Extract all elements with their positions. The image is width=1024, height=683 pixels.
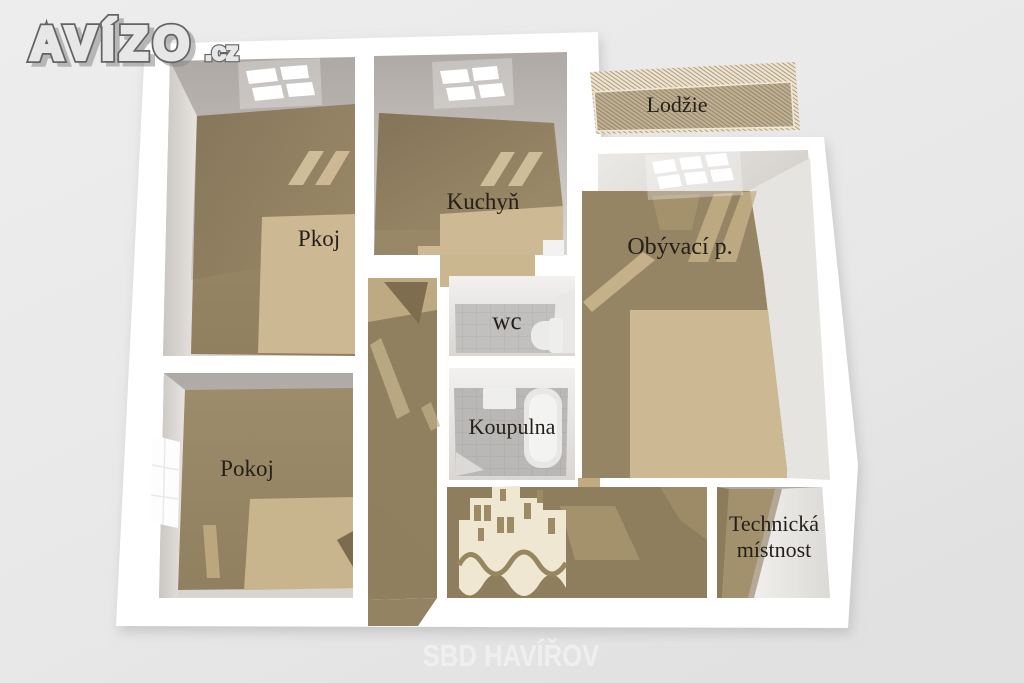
svg-text:Technická: Technická — [729, 511, 819, 536]
svg-text:.cz: .cz — [205, 38, 238, 66]
svg-text:Koupulna: Koupulna — [469, 414, 556, 439]
svg-text:Pkoj: Pkoj — [298, 226, 340, 251]
svg-text:Obývací p.: Obývací p. — [627, 234, 732, 260]
svg-text:AVÍZO: AVÍZO — [30, 17, 195, 69]
svg-text:Lodžie: Lodžie — [646, 92, 707, 117]
svg-text:SBD HAVÍŘOV: SBD HAVÍŘOV — [423, 639, 600, 674]
svg-text:Kuchyň: Kuchyň — [447, 189, 520, 214]
svg-text:Pokoj: Pokoj — [220, 456, 274, 481]
svg-text:wc: wc — [492, 308, 521, 335]
svg-text:místnost: místnost — [737, 537, 812, 562]
